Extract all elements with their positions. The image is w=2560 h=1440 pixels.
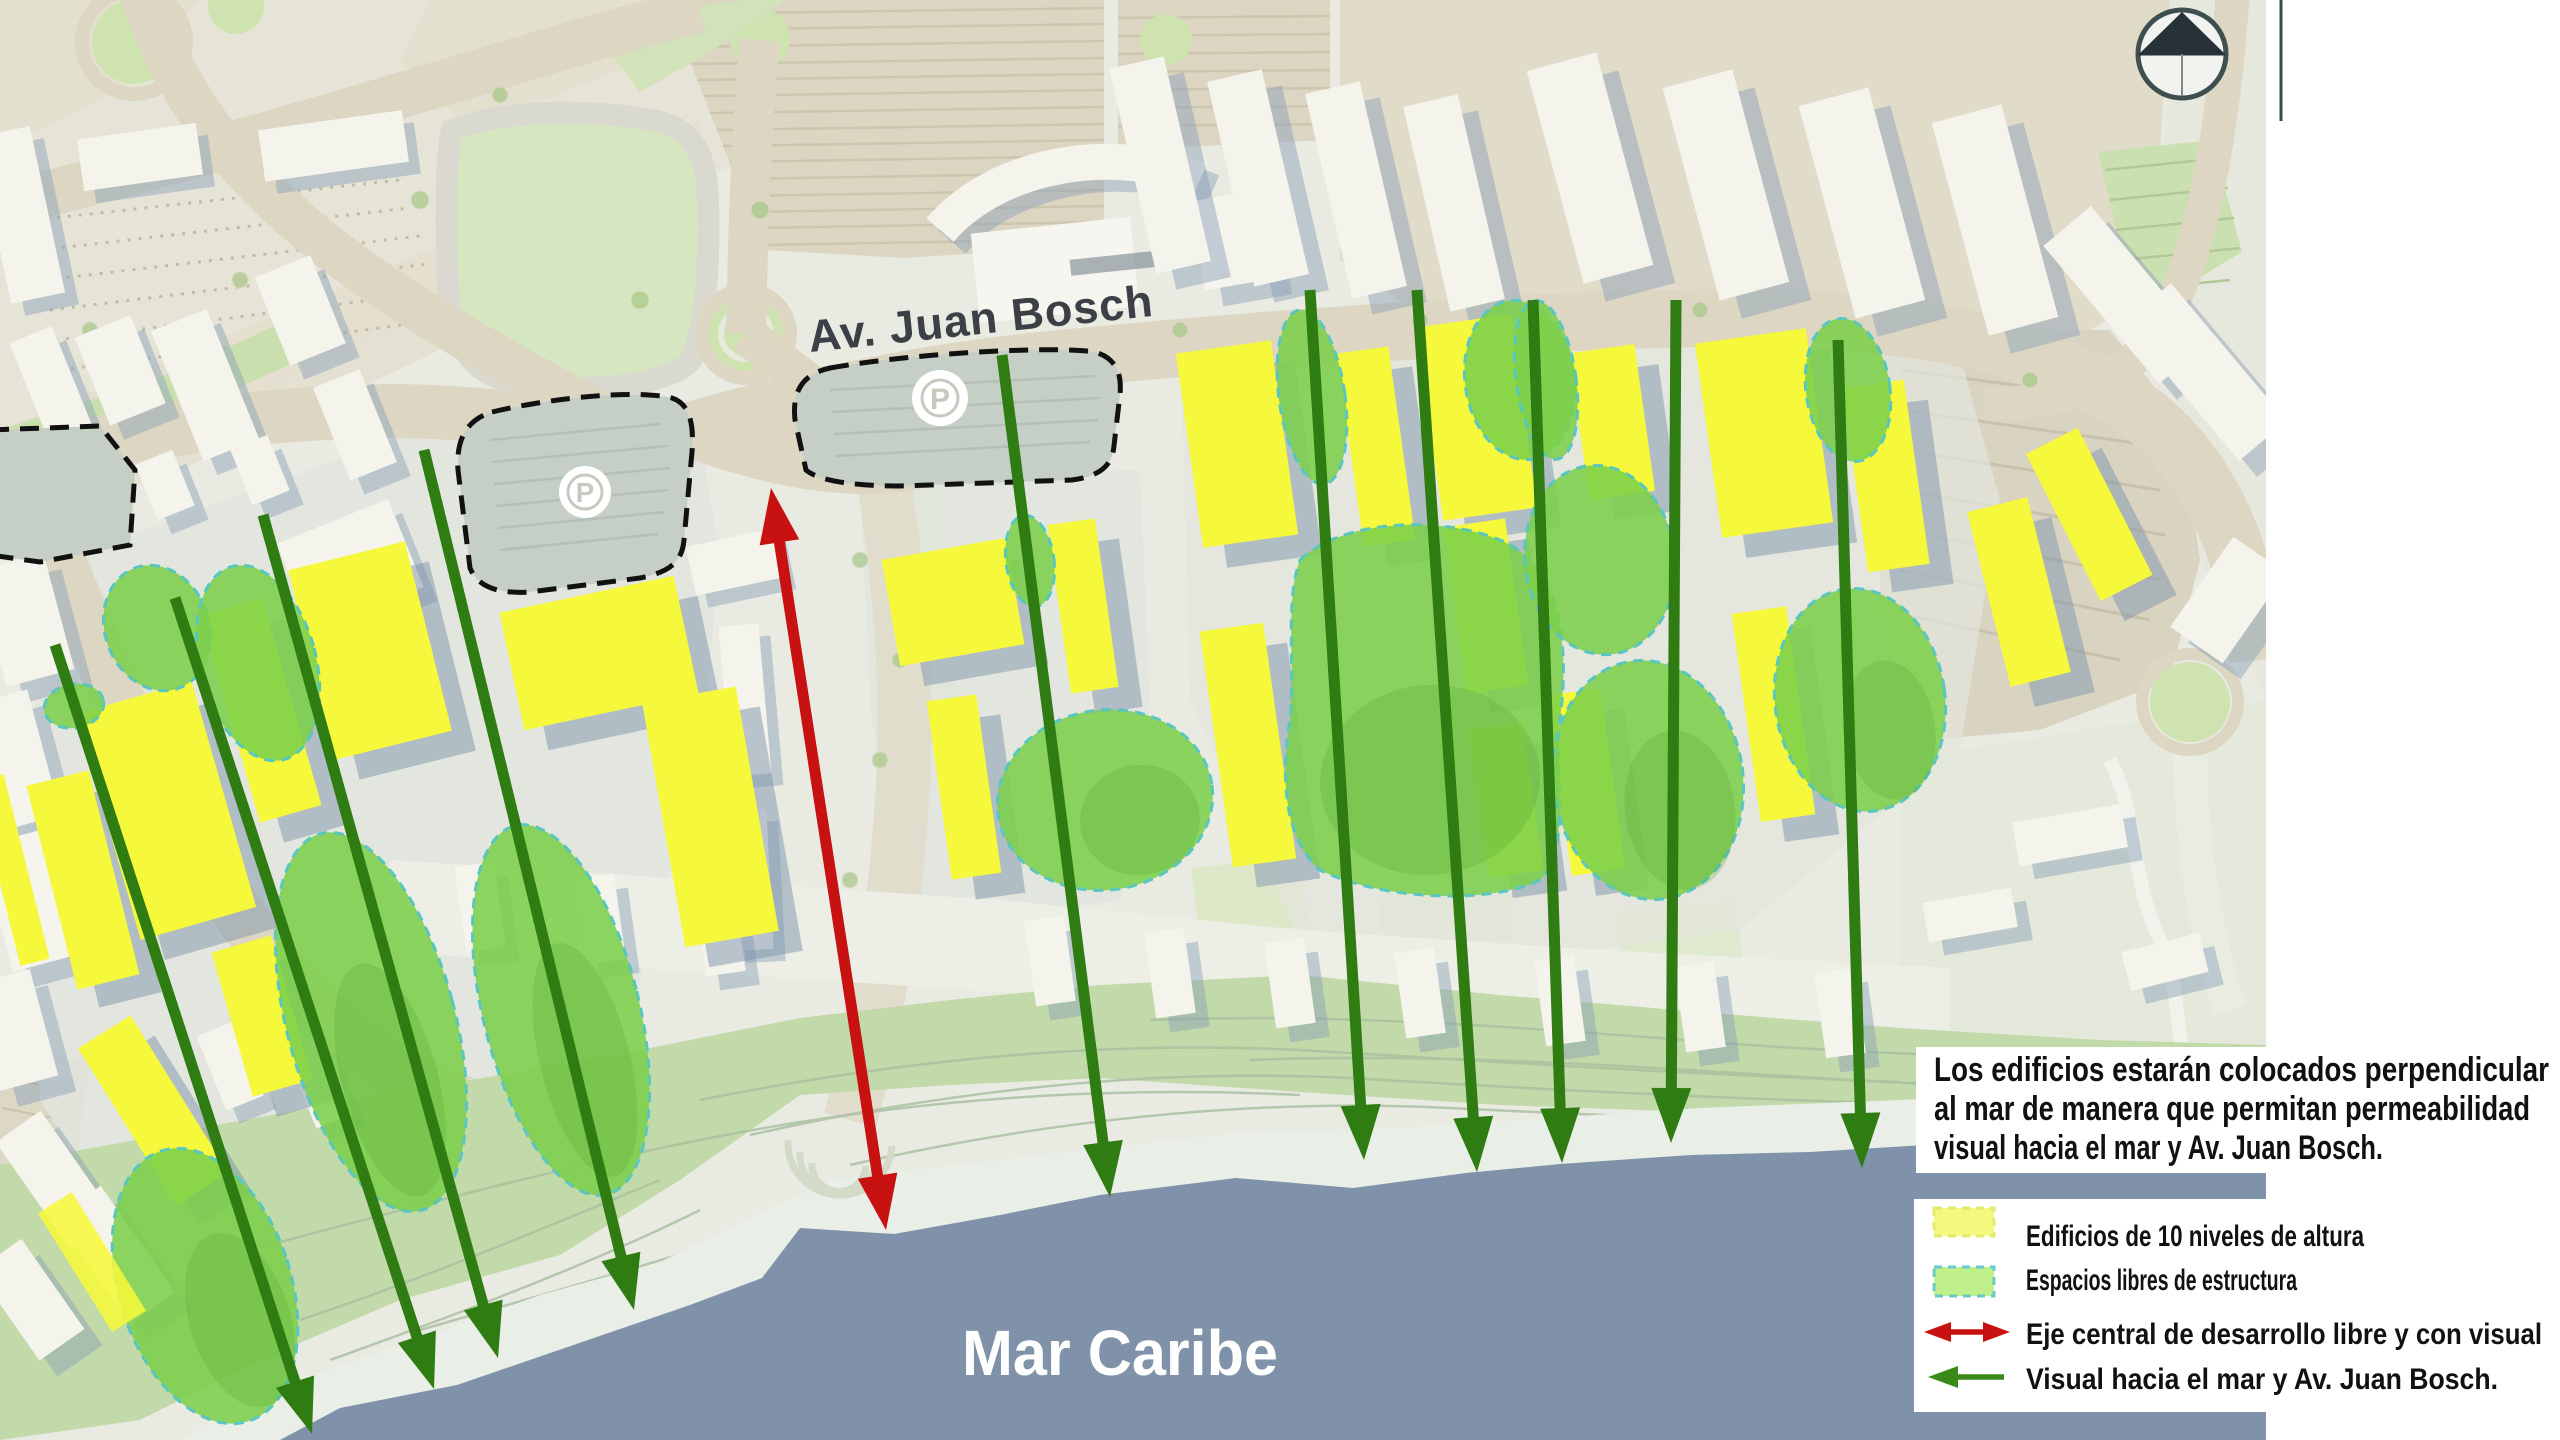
svg-text:Visual hacia el mar y Av. Juan: Visual hacia el mar y Av. Juan Bosch. [2026, 1363, 2498, 1396]
svg-text:P: P [576, 477, 595, 508]
svg-text:Eje central de desarrollo libr: Eje central de desarrollo libre y con vi… [2026, 1318, 2542, 1351]
svg-text:al mar de manera que permitan: al mar de manera que permitan permeabili… [1934, 1090, 2530, 1128]
svg-text:visual hacia el mar y Av. Juan: visual hacia el mar y Av. Juan Bosch. [1934, 1129, 2383, 1167]
svg-text:Mar Caribe: Mar Caribe [962, 1317, 1278, 1389]
svg-text:Espacios libres de estructura: Espacios libres de estructura [2026, 1264, 2297, 1297]
svg-text:Edificios de 10 niveles de alt: Edificios de 10 niveles de altura [2026, 1220, 2364, 1253]
svg-text:P: P [930, 383, 950, 416]
svg-text:Los edificios estarán colocado: Los edificios estarán colocados perpendi… [1934, 1051, 2549, 1089]
